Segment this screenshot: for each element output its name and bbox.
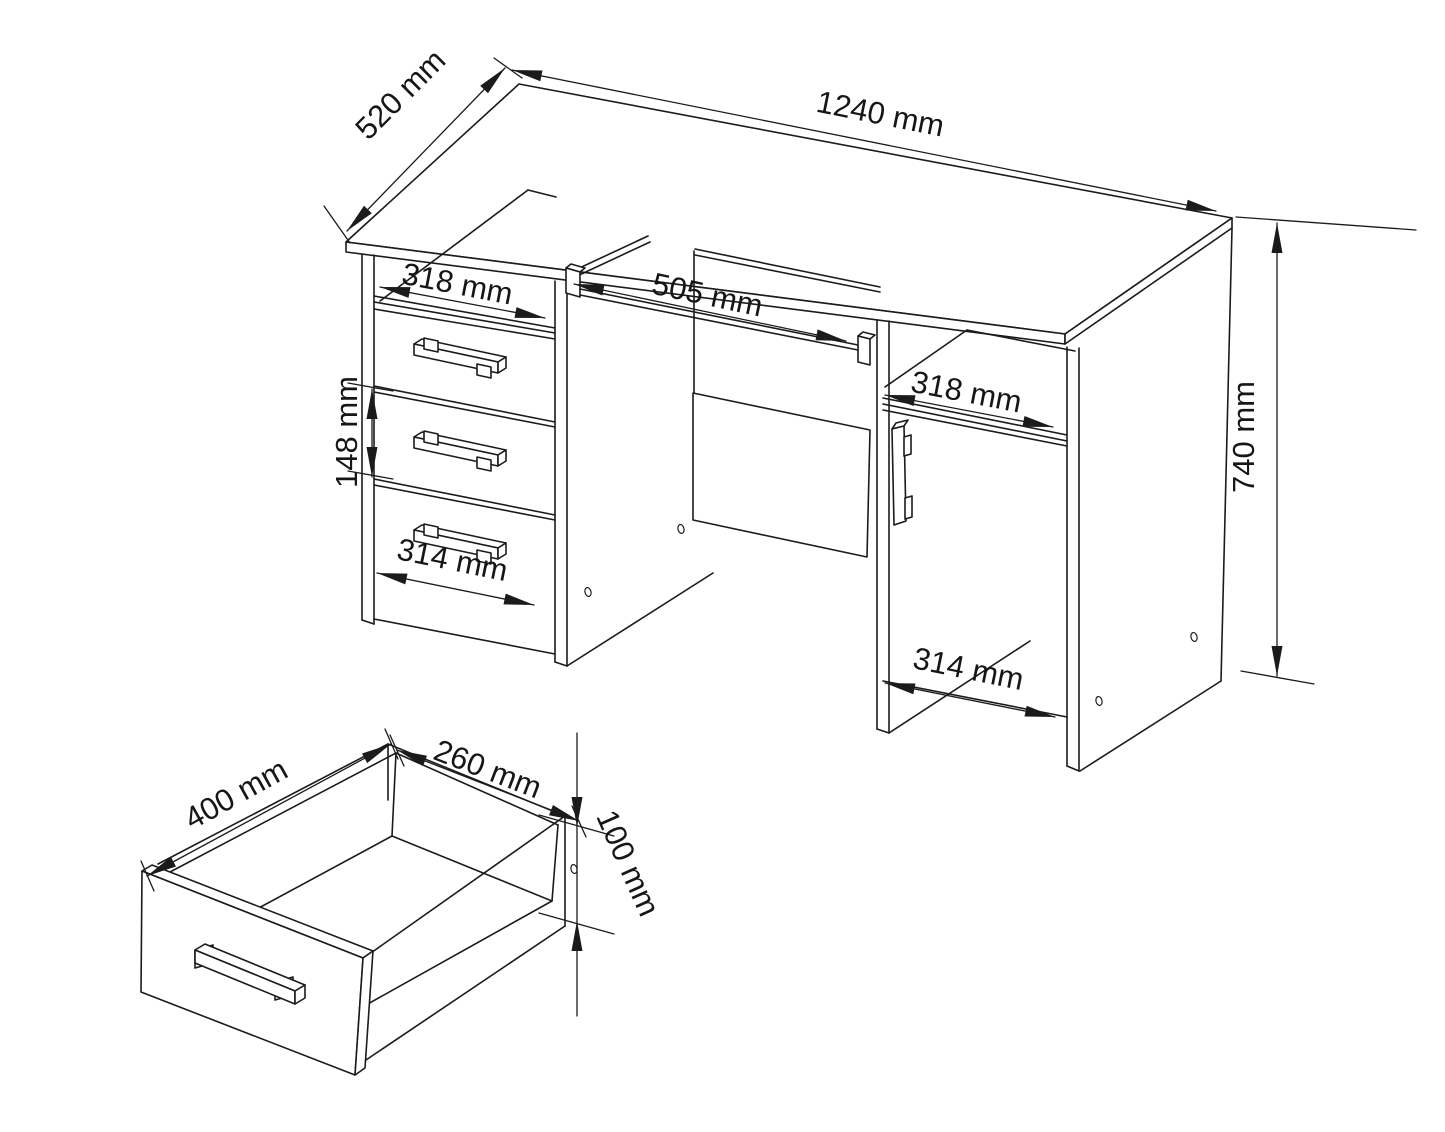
arrowhead [1023, 416, 1054, 427]
screw-hole-icon [677, 524, 685, 534]
arrowhead [367, 447, 378, 477]
arrowhead [377, 573, 408, 584]
diagram-canvas: 520 mm 1240 mm 318 mm 505 mm [0, 0, 1445, 1132]
handle-foot-right [477, 457, 491, 471]
arrowhead [1272, 223, 1283, 253]
drawer-handle-2 [414, 431, 506, 471]
handle-foot-right [477, 364, 491, 378]
desk-technical-drawing: 520 mm 1240 mm 318 mm 505 mm [0, 0, 1445, 1132]
arrowhead [1025, 706, 1056, 717]
arrowhead [397, 750, 427, 766]
dim-label-right-door-width: 314 mm [910, 640, 1027, 697]
right-side-panel-bottom-cap [1067, 766, 1079, 771]
dim-drawer-front-height: 148 mm [329, 376, 393, 488]
arrowhead [572, 797, 583, 827]
arrowhead [515, 307, 546, 318]
box-right-bottom-edge [363, 926, 565, 1062]
dim-left-drawer-front-width: 314 mm [377, 531, 534, 605]
dim-label-desk-height: 740 mm [1226, 381, 1261, 493]
door-handle [892, 420, 912, 525]
left-inner-panel-bottom-cap [555, 662, 567, 666]
dim-right-door-width: 314 mm [885, 640, 1055, 717]
arrowhead [816, 329, 847, 341]
drawer-bottom-edge [374, 619, 555, 654]
modesty-panel [693, 393, 870, 557]
dim-drawer-box-height: 100 mm [539, 733, 667, 1016]
dim-right-shelf-opening: 318 mm [885, 364, 1053, 427]
arrowhead [504, 594, 535, 605]
tray-bracket-right [858, 336, 870, 365]
arrowhead [512, 70, 543, 81]
dim-label-drawer-front-height: 148 mm [329, 376, 364, 488]
arrowhead [572, 921, 583, 951]
screw-holes [584, 524, 1198, 706]
tray-bracket-left [566, 268, 580, 297]
screw-hole-icon [1190, 632, 1198, 642]
extension-line [324, 206, 350, 243]
arrowhead [367, 389, 378, 419]
arrowhead [362, 744, 391, 763]
drawer-divider-1b [374, 392, 555, 427]
right-side-panel-bottom-edge [1080, 681, 1221, 771]
arrowhead [1186, 200, 1217, 211]
door-handle-foot-bottom [905, 496, 912, 519]
arrowhead [1272, 646, 1283, 676]
drawer-handle-1 [414, 338, 506, 378]
door-handle-foot-top [904, 435, 911, 456]
dim-label-drawer-box-height: 100 mm [589, 805, 667, 922]
right-inner-panel-bottom-cap [877, 729, 889, 733]
dim-label-right-shelf-opening: 318 mm [908, 364, 1025, 420]
left-side-panel-bottom [362, 620, 374, 624]
screw-hole-icon [584, 587, 592, 597]
dim-label-desk-depth: 520 mm [348, 42, 452, 146]
box-inner-corner-back-right [552, 825, 558, 901]
drawer-divider-1a [374, 386, 555, 422]
screw-hole-icon [1095, 696, 1103, 706]
drawer-divider-2b [374, 485, 555, 520]
handle-foot-left [424, 338, 438, 352]
box-right-top-edge [368, 816, 565, 955]
drawer-divider-2a [374, 479, 555, 515]
extension-line [1236, 217, 1416, 230]
dim-desk-height: 740 mm [1226, 223, 1314, 684]
box-inner-corner-back-left [392, 753, 396, 836]
drawer-detail: 400 mm 260 mm 100 mm [141, 729, 667, 1075]
handle-foot-left [424, 431, 438, 445]
left-inner-panel-bottom-edge [567, 573, 713, 666]
